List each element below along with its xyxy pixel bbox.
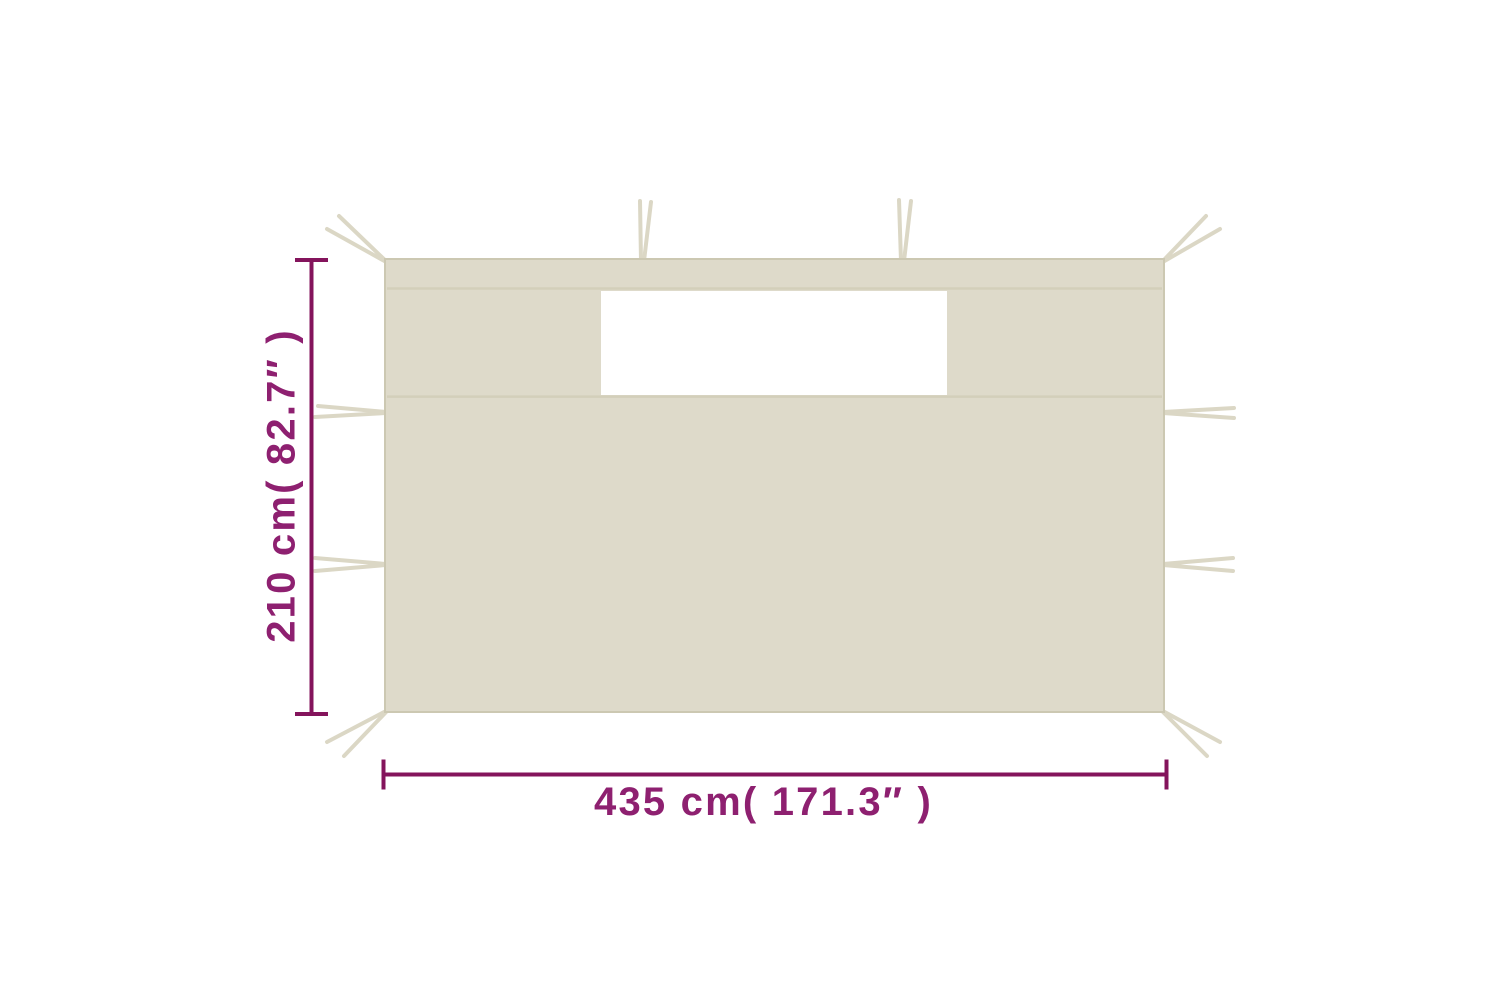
svg-text:210 cm( 82.7″ ): 210 cm( 82.7″ ) — [260, 328, 304, 643]
svg-text:435 cm( 171.3″ ): 435 cm( 171.3″ ) — [594, 780, 933, 824]
